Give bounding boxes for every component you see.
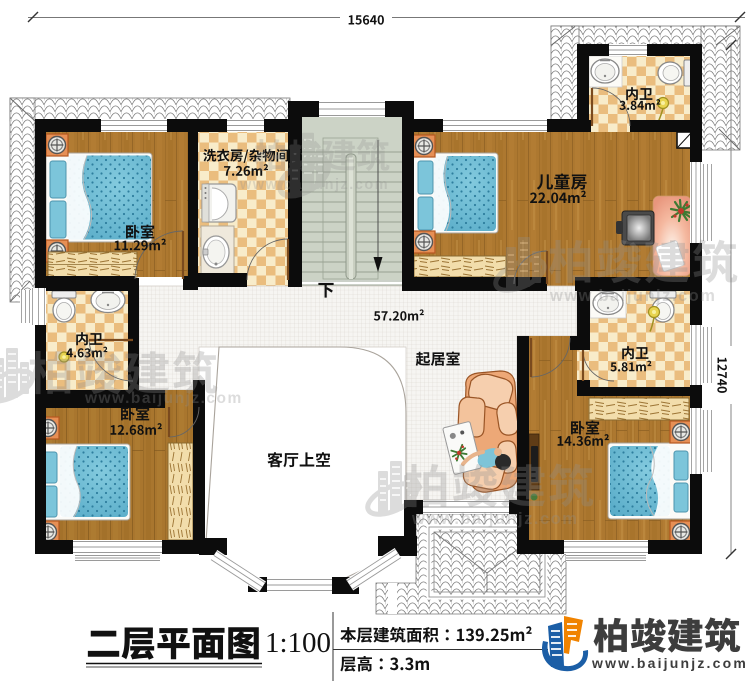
svg-text:www.baijunjz.com: www.baijunjz.com xyxy=(411,510,578,528)
svg-text:www.baijunjz.com: www.baijunjz.com xyxy=(591,655,748,671)
svg-text:www.baijunjz.com: www.baijunjz.com xyxy=(239,177,389,193)
svg-text:1:100: 1:100 xyxy=(265,627,331,659)
svg-text:www.baijunjz.com: www.baijunjz.com xyxy=(84,390,243,407)
svg-text:www.baijunjz.com: www.baijunjz.com xyxy=(549,287,716,305)
